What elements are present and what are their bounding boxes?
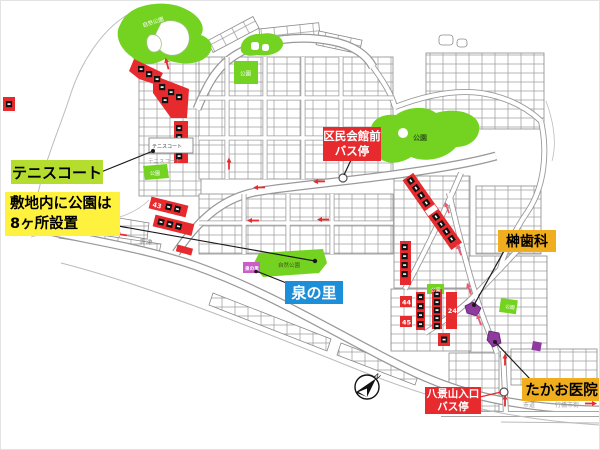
lot-number: 24 <box>448 307 458 315</box>
callout-tennis-court: テニスコート <box>11 160 103 184</box>
tennis-court-callout-label: テニスコート <box>12 162 102 183</box>
kumin-bus-line1: 区民会館前 <box>323 129 381 144</box>
park-label: 公園 <box>431 288 441 294</box>
park-label: 公園 <box>413 133 427 142</box>
takao-callout-label: たかお医院 <box>525 379 598 400</box>
callout-kumin-hall-bus-stop: 区民会館前 バス停 <box>323 127 381 161</box>
bus-stop-marker <box>339 174 347 182</box>
housing-map: 43 44 45 24 泉の里 <box>0 0 600 450</box>
tennis-court-small-label: テニスコート <box>148 158 181 165</box>
shido-label: 市道 <box>523 401 535 409</box>
izumi-callout-label: 泉の里 <box>291 282 336 303</box>
callout-parks-note: 敷地内に公園は 8ヶ所設置 <box>5 192 120 236</box>
hakkei-bus-line1: 八景山入口 <box>427 388 480 401</box>
callout-izumi-no-sato: 泉の里 <box>285 281 343 304</box>
hakkei-bus-line2: バス停 <box>437 401 469 414</box>
tennis-court-box-label: テニスコート <box>152 144 182 150</box>
sakaki-callout-label: 榊歯科 <box>506 231 548 251</box>
compass-icon: N <box>355 372 382 399</box>
park-area <box>241 33 283 56</box>
bus-stop-marker <box>500 388 508 396</box>
kumin-bus-line2: バス停 <box>335 144 370 159</box>
callout-hakkeizan-bus-stop: 八景山入口 バス停 <box>425 387 481 414</box>
parks-note-line2: 8ヶ所設置 <box>10 214 78 234</box>
park-label: 公園 <box>150 171 160 177</box>
lot-number: 44 <box>402 299 412 307</box>
small-purple-marker <box>531 341 541 351</box>
callout-takao-clinic: たかお医院 <box>522 378 600 401</box>
lot-number: 45 <box>402 319 412 327</box>
yukuhashi-label: 行橋市街 <box>555 401 579 409</box>
park-label: 公園 <box>240 71 252 78</box>
parks-note-line1: 敷地内に公園は <box>10 194 112 214</box>
callout-sakaki-dental: 榊歯科 <box>498 230 556 252</box>
nature-park-label: 自然公園 <box>278 261 301 269</box>
